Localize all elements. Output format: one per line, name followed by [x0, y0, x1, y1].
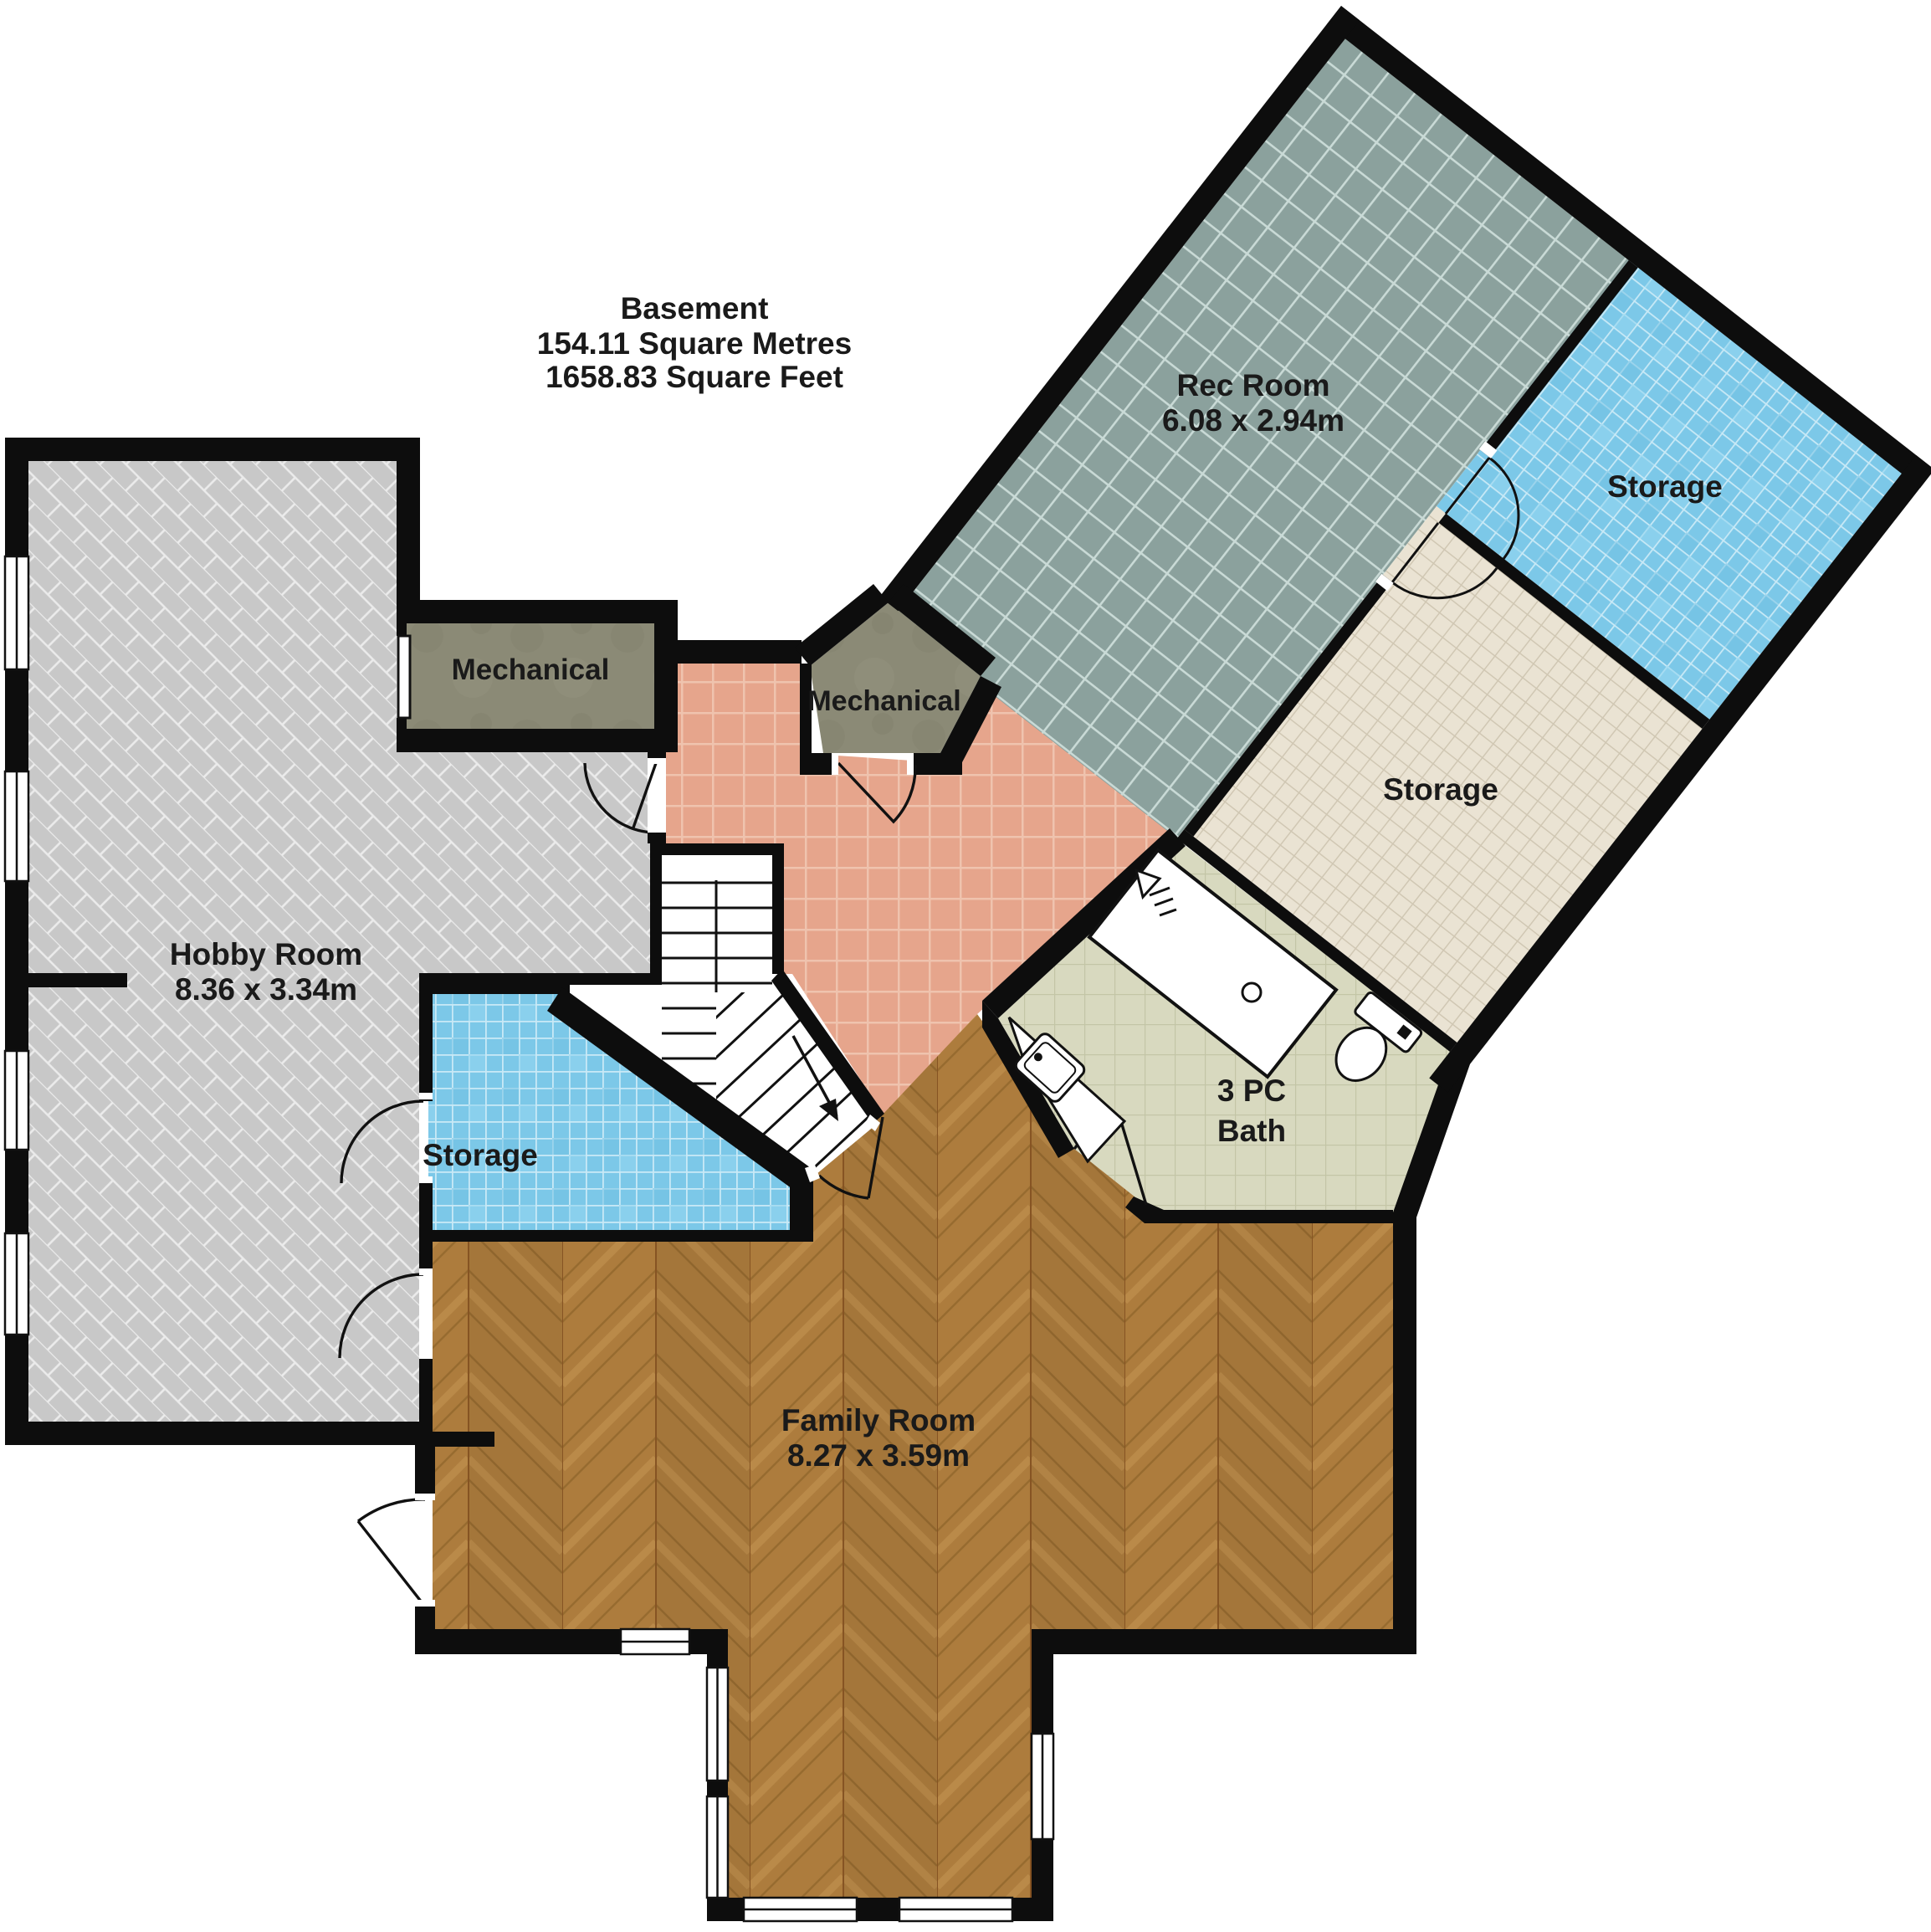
svg-text:Mechanical: Mechanical — [452, 653, 610, 686]
svg-text:3 PC: 3 PC — [1217, 1074, 1286, 1108]
svg-text:154.11 Square Metres: 154.11 Square Metres — [537, 326, 852, 361]
svg-text:8.27 x 3.59m: 8.27 x 3.59m — [787, 1438, 970, 1473]
svg-text:Family Room: Family Room — [781, 1403, 976, 1437]
svg-text:Rec Room: Rec Room — [1177, 368, 1330, 402]
svg-text:Hobby Room: Hobby Room — [170, 937, 362, 971]
svg-text:1658.83 Square Feet: 1658.83 Square Feet — [545, 360, 843, 394]
svg-text:8.36 x 3.34m: 8.36 x 3.34m — [175, 972, 357, 1007]
svg-text:Basement: Basement — [621, 291, 769, 325]
svg-text:6.08 x 2.94m: 6.08 x 2.94m — [1162, 403, 1345, 438]
svg-text:Storage: Storage — [423, 1138, 538, 1172]
svg-text:Storage: Storage — [1383, 772, 1498, 807]
svg-text:Bath: Bath — [1217, 1114, 1286, 1148]
svg-text:Mechanical: Mechanical — [807, 685, 960, 717]
svg-text:Storage: Storage — [1607, 469, 1723, 504]
